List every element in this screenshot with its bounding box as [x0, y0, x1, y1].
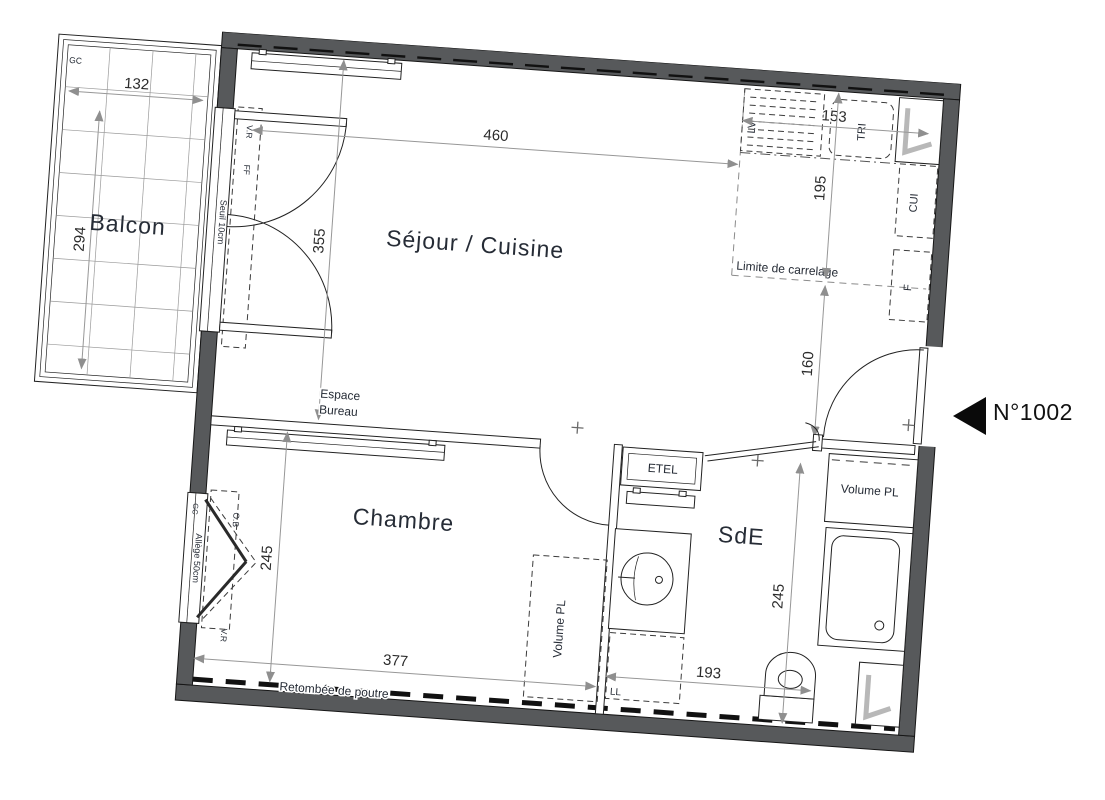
chambre-width-dim: 377 — [382, 652, 408, 671]
balcony-height-dim: 294 — [71, 226, 90, 252]
balcony-room-label: Balcon — [89, 209, 167, 240]
unit-number-label: N°1002 — [993, 399, 1073, 426]
sde-room: ETEL SdE LL Vol — [595, 409, 920, 735]
kitchen-depth-dim: 195 — [811, 175, 830, 201]
sejour-room-label: Séjour / Cuisine — [385, 225, 565, 264]
entry-door — [823, 339, 946, 447]
unit-pointer-icon — [953, 397, 986, 435]
vr-window-label: V.R — [219, 628, 230, 642]
shower — [818, 528, 913, 652]
tri-label: TRI — [855, 123, 868, 142]
fridge-label: F — [902, 284, 914, 292]
counter-edge-line — [740, 153, 896, 164]
tiling-limit-label: Limite de carrelage — [736, 259, 839, 280]
chambre-window: Allège 50cm GC O.B V.R — [178, 488, 261, 643]
chambre-room-label: Chambre — [352, 503, 455, 536]
ff-label: FF — [242, 164, 253, 175]
balcony: GC 132 294 Balcon — [34, 34, 221, 393]
gc-window-label: GC — [190, 503, 200, 515]
door-leaf-bottom — [219, 322, 331, 338]
etel-label: ETEL — [647, 461, 678, 477]
balcony-width-dim: 132 — [124, 75, 150, 94]
kitchen-window — [895, 98, 943, 165]
vr-top-label: V.R — [244, 125, 255, 139]
floor-plan-page: { "unit": { "number": "N°1002" }, "rooms… — [0, 0, 1105, 800]
chambre-level-mark — [571, 421, 584, 434]
chambre-room: Chambre Volume PL 245 377 Retombée de po… — [174, 426, 614, 716]
sde-width-dim: 193 — [695, 664, 721, 683]
bottom-right-window — [855, 662, 903, 727]
sejour-height-dim: 355 — [310, 228, 329, 254]
entry-closet: Volume PL — [825, 454, 919, 528]
sejour-width-dim: 460 — [483, 126, 509, 145]
kitchen-width-dim: 153 — [821, 107, 847, 126]
washing-machine-label: LL — [610, 687, 622, 699]
left-wall-middle — [190, 331, 217, 494]
entry-dim: 160 — [799, 351, 818, 377]
sde-door-leaf — [704, 434, 819, 469]
ob-label: O.B — [231, 512, 242, 528]
left-wall-lower — [176, 622, 196, 685]
sde-room-label: SdE — [717, 521, 765, 550]
entry-stub-wall — [812, 434, 915, 457]
espace-bureau-label-2: Bureau — [319, 402, 359, 419]
sde-level-mark — [751, 454, 764, 467]
entry-level-mark — [902, 419, 915, 432]
etel-shelf — [626, 487, 695, 508]
chambre-height-dim: 245 — [258, 545, 277, 571]
chambre-door-swing-arc — [535, 446, 614, 525]
chambre-closet-label: Volume PL — [550, 599, 568, 658]
floor-plan-svg: GC 132 294 Balcon Seuil 10cm V.R FF — [8, 20, 1055, 795]
left-wall-upper — [217, 48, 237, 109]
floor-plan-drawing: GC 132 294 Balcon Seuil 10cm V.R FF — [8, 20, 1055, 795]
sde-height-dim: 245 — [769, 583, 788, 609]
espace-bureau-label-1: Espace — [320, 386, 361, 403]
cui-label: CUI — [908, 193, 921, 213]
washbasin — [608, 529, 691, 634]
gc-balcony-label: GC — [69, 55, 82, 66]
toilet — [758, 650, 817, 723]
